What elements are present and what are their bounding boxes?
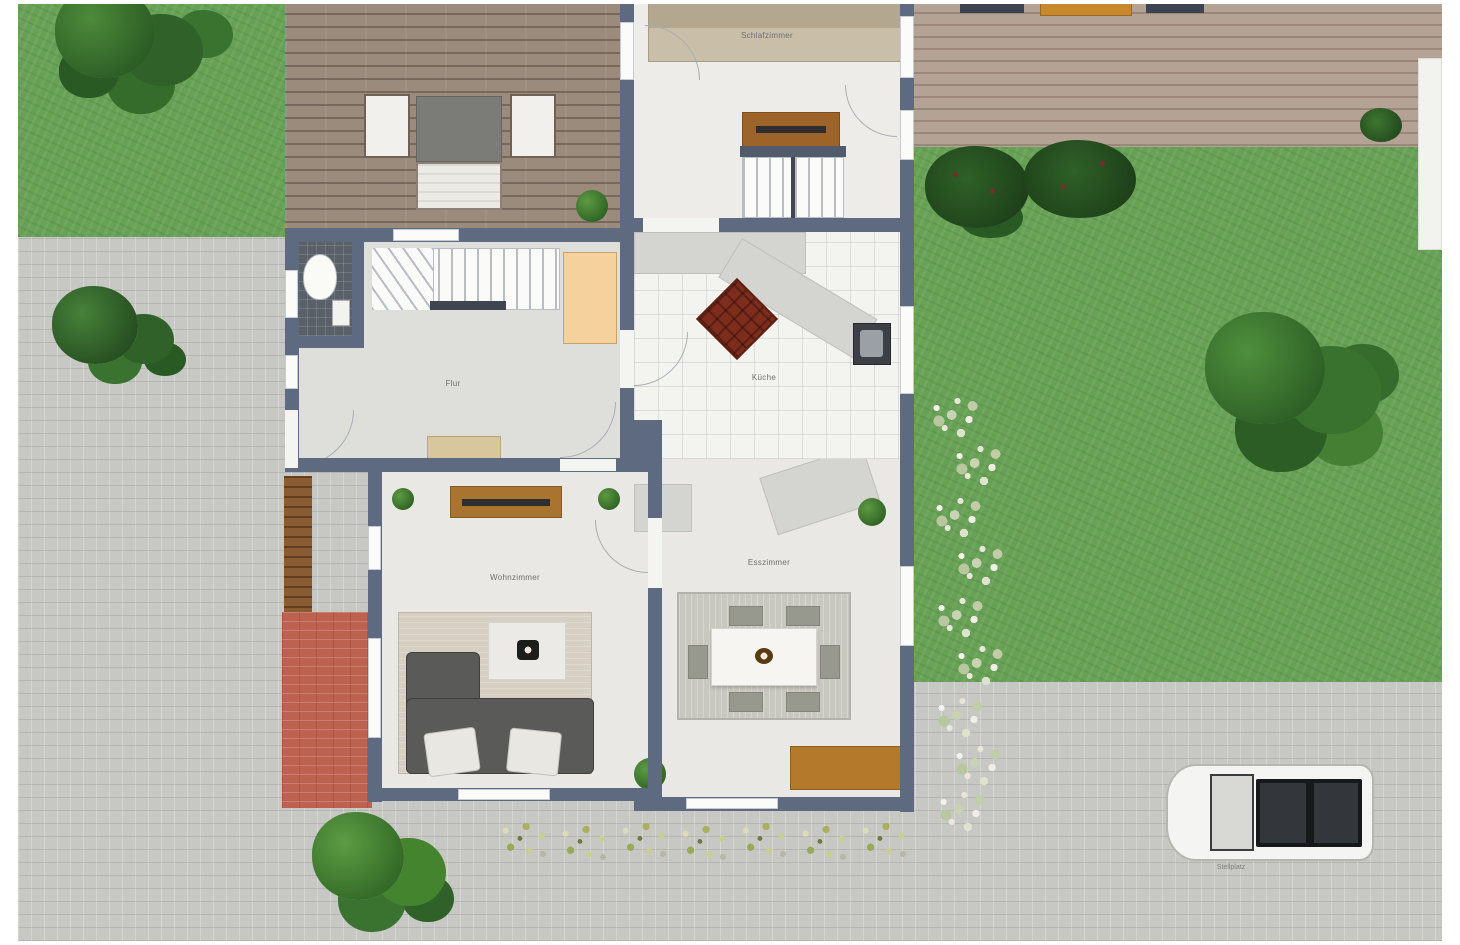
deck-rug	[416, 96, 502, 162]
kitchen-sink-basin	[860, 330, 883, 357]
wall-living-west	[368, 458, 382, 802]
bedroom-room: Schlafzimmer	[634, 0, 900, 220]
page-border-right	[1442, 0, 1460, 945]
wc-sink	[332, 300, 350, 326]
tree-bottom-left	[312, 812, 404, 900]
flower-hedge-east	[948, 440, 1006, 490]
window-east-2	[900, 110, 914, 160]
bedroom-stairs-divider	[791, 157, 795, 218]
door-gap-bedroom-south	[643, 218, 719, 232]
hall-stairs-winder	[372, 248, 434, 310]
living-plant	[598, 488, 620, 510]
flower-hedge-east	[932, 786, 990, 836]
outdoor-steps	[284, 476, 312, 612]
flower-hedge-east	[930, 592, 988, 642]
window-dining-south	[686, 798, 778, 809]
hall-stairs-rail	[430, 301, 506, 310]
deck-plant	[576, 190, 608, 222]
dining-plant	[858, 498, 886, 526]
dining-chair	[729, 606, 763, 626]
dining-room: Esszimmer	[634, 459, 900, 798]
shrub-row-south	[732, 815, 794, 867]
dining-chair	[820, 645, 840, 679]
dining-label: Esszimmer	[674, 557, 864, 569]
living-plant	[392, 488, 414, 510]
deck-lounge-chair	[364, 94, 410, 158]
dining-chair	[729, 692, 763, 712]
car-windshield	[1210, 774, 1254, 851]
tree-right	[1205, 312, 1325, 424]
parking-label: Stellplatz	[1186, 864, 1276, 871]
window-living-west-1	[368, 526, 381, 570]
deck-lounge-chair	[510, 94, 556, 158]
bush-top-right-2	[1024, 140, 1136, 218]
entry-door-arc	[298, 410, 354, 460]
shrub-row-south	[552, 818, 614, 870]
dining-sideboard	[790, 746, 900, 790]
sofa-cushion	[423, 727, 481, 778]
shrub-row-south	[792, 818, 854, 870]
window-living-south	[458, 789, 550, 800]
dining-chair	[688, 645, 708, 679]
dining-centerpiece	[755, 648, 773, 664]
living-label: Wohnzimmer	[415, 572, 615, 584]
floor-plan-canvas: Schlafzimmer Flur Küche	[0, 0, 1460, 945]
wall-hall-north	[285, 228, 634, 242]
dining-chair	[786, 606, 820, 626]
window-hall-west-1	[285, 270, 298, 318]
deck-table	[416, 162, 502, 210]
living-east-door-arc	[595, 520, 648, 573]
wc-wall-bottom	[298, 336, 364, 348]
hall-sideboard	[427, 436, 501, 460]
sofa-cushion	[506, 727, 562, 776]
dining-chair	[786, 692, 820, 712]
coffee-table	[517, 640, 539, 660]
bush-top-right-1	[925, 146, 1029, 228]
wall-living-east	[648, 458, 662, 802]
window-bedroom-west	[620, 22, 634, 80]
flower-hedge-east	[948, 740, 1006, 790]
living-sideboard-band	[462, 499, 550, 506]
window-east-3	[900, 306, 914, 394]
hall-south-door-arc	[560, 402, 616, 458]
shrub-row-south	[612, 815, 674, 867]
dining-counter-diagonal	[759, 459, 880, 535]
car	[1166, 764, 1374, 861]
bedroom-label: Schlafzimmer	[634, 30, 900, 42]
door-gap-hall-kitchen	[620, 330, 634, 388]
page-border-left	[0, 0, 18, 945]
flower-hedge-east	[950, 540, 1008, 590]
bush-left	[52, 286, 138, 364]
window-east-1	[900, 16, 914, 78]
window-east-4	[900, 566, 914, 646]
toilet	[303, 254, 337, 300]
shrub-row-south	[852, 815, 914, 867]
hall-wardrobe	[563, 252, 617, 344]
page-border-top	[0, 0, 1460, 4]
white-strip-right	[1418, 58, 1442, 250]
door-gap-hall-south	[560, 459, 616, 471]
flower-hedge-east	[950, 640, 1008, 690]
door-gap-living-east	[648, 518, 662, 588]
flower-hedge-east	[930, 692, 988, 742]
window-hall-west-2	[285, 355, 298, 389]
bush-right-small	[1360, 108, 1402, 142]
kitchen-label: Küche	[694, 372, 834, 384]
brick-patio	[282, 612, 372, 808]
shrub-row-south	[492, 815, 554, 867]
bedroom-door-arc-right	[845, 85, 897, 137]
stair-landing-bar	[740, 146, 846, 157]
car-roof-panel	[1314, 783, 1358, 843]
page-border-bottom	[0, 941, 1460, 945]
flower-hedge-east	[928, 492, 986, 542]
window-living-west-2	[368, 638, 381, 738]
flower-hedge-east	[925, 392, 983, 442]
car-roof-panel	[1260, 783, 1306, 843]
living-room: Wohnzimmer	[381, 471, 649, 789]
bedroom-sideboard-band	[756, 126, 826, 133]
wc-wall-right	[352, 242, 364, 342]
shrub-row-south	[672, 818, 734, 870]
hall-label: Flur	[398, 378, 508, 390]
door-gap-entry	[285, 410, 298, 468]
hall-room: Flur	[298, 242, 634, 460]
window-hall-north	[393, 229, 459, 241]
